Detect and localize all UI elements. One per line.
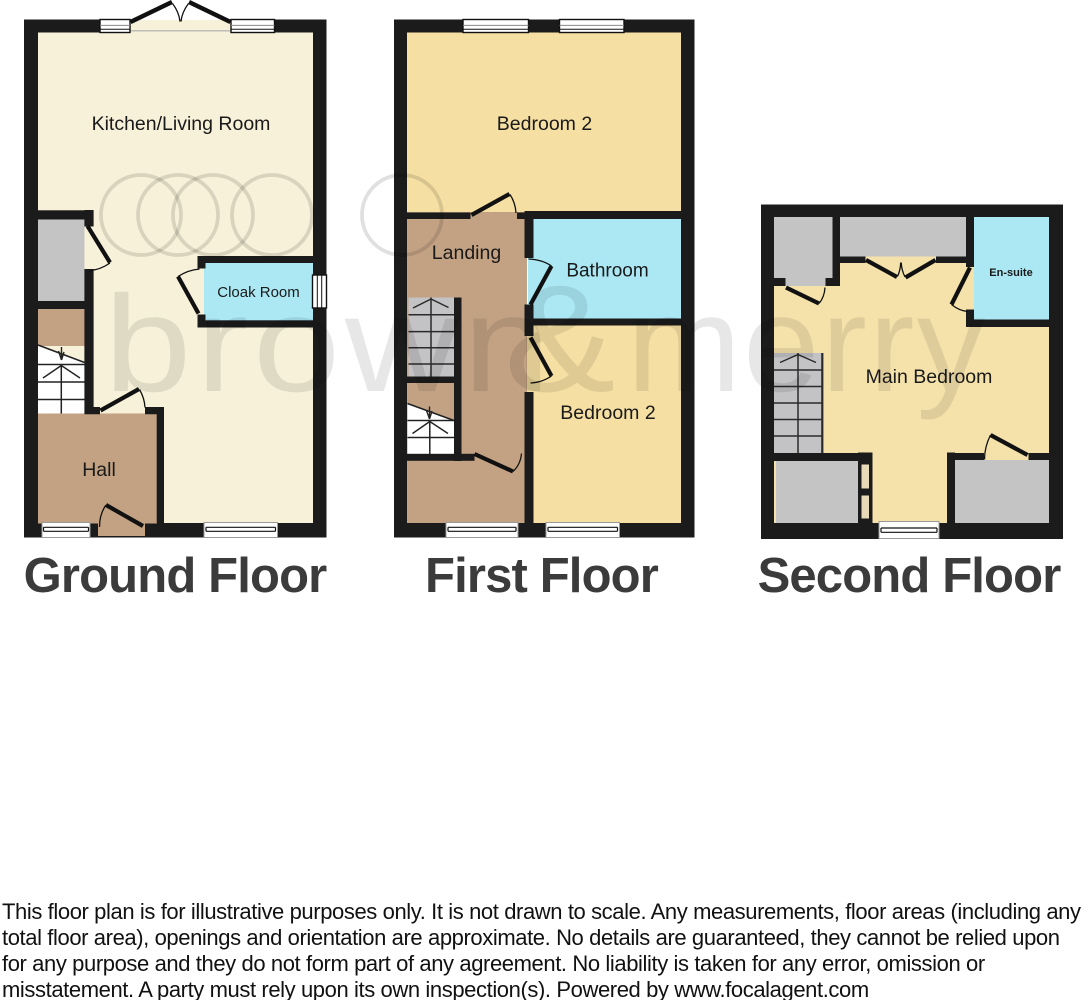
svg-text:Bedroom 2: Bedroom 2 bbox=[497, 113, 592, 135]
svg-text:Ground Floor: Ground Floor bbox=[24, 549, 328, 603]
svg-text:First Floor: First Floor bbox=[425, 549, 659, 603]
svg-text:merry: merry bbox=[627, 268, 987, 421]
svg-text:En-suite: En-suite bbox=[989, 267, 1032, 279]
svg-text:Kitchen/Living Room: Kitchen/Living Room bbox=[92, 113, 271, 135]
svg-text:Hall: Hall bbox=[82, 459, 116, 481]
svg-text:brown: brown bbox=[104, 268, 555, 420]
svg-text:for any purpose and they do no: for any purpose and they do not form par… bbox=[2, 951, 985, 976]
svg-text:total floor area), openings an: total floor area), openings and orientat… bbox=[2, 925, 1060, 950]
svg-text:This floor plan is for illustr: This floor plan is for illustrative purp… bbox=[2, 899, 1081, 924]
svg-text:Landing: Landing bbox=[432, 242, 501, 264]
svg-text:&: & bbox=[504, 253, 616, 423]
svg-text:misstatement. A party must rel: misstatement. A party must rely upon its… bbox=[2, 977, 869, 1000]
svg-text:Second Floor: Second Floor bbox=[758, 549, 1062, 603]
